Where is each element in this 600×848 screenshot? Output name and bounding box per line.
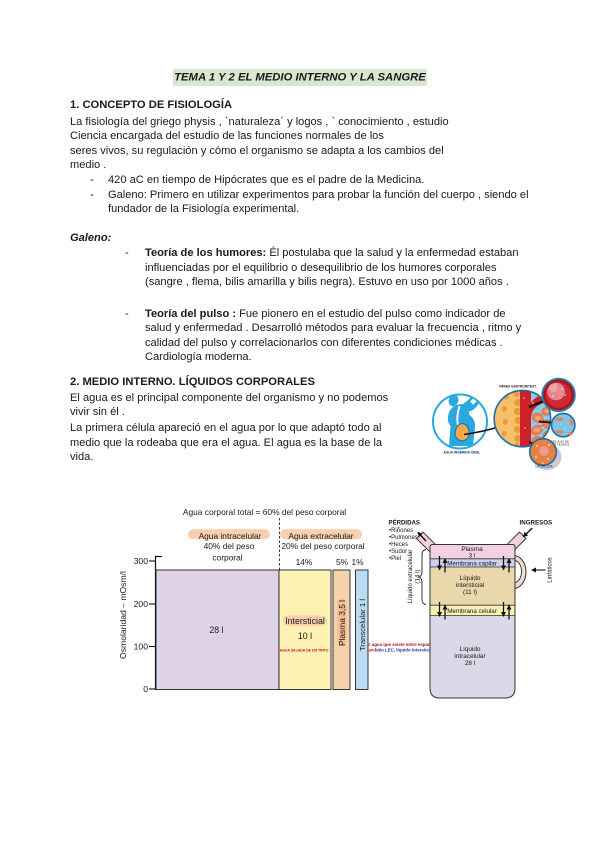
- svg-text:•Riñones: •Riñones: [389, 528, 413, 534]
- svg-text:1%: 1%: [351, 557, 364, 567]
- svg-text:20% del peso corporal: 20% del peso corporal: [281, 541, 364, 551]
- svg-text:3 l: 3 l: [469, 552, 476, 559]
- svg-text:28 l: 28 l: [465, 660, 475, 667]
- svg-text:0: 0: [143, 684, 148, 694]
- svg-text:Líquido extracelular: Líquido extracelular: [407, 549, 414, 603]
- svg-text:INGRESOS: INGRESOS: [520, 520, 553, 527]
- svg-text:Intersticial: Intersticial: [285, 616, 325, 626]
- svg-text:10 l: 10 l: [298, 631, 312, 641]
- svg-text:Líquido: Líquido: [460, 575, 481, 582]
- svg-text:•Pulmones: •Pulmones: [389, 535, 418, 541]
- svg-text:PÉRDIDAS: PÉRDIDAS: [389, 519, 421, 527]
- svg-text:28 l: 28 l: [209, 625, 223, 635]
- svg-text:•Heces: •Heces: [389, 542, 408, 548]
- svg-text:14%: 14%: [296, 557, 313, 567]
- svg-text:200: 200: [134, 599, 149, 609]
- svg-text:PARED GASTROINTEST.: PARED GASTROINTEST.: [499, 385, 536, 389]
- svg-text:100: 100: [134, 642, 149, 652]
- svg-text:300: 300: [134, 556, 149, 566]
- svg-text:LA CÉLULA: LA CÉLULA: [535, 464, 553, 469]
- svg-text:Plasma 3,5 l: Plasma 3,5 l: [337, 600, 347, 646]
- svg-text:Agua corporal total = 60% del: Agua corporal total = 60% del peso corpo…: [183, 507, 346, 517]
- svg-text:AGUA SALADA DE UN TINTO: AGUA SALADA DE UN TINTO: [280, 649, 329, 653]
- svg-text:•Sudor: •Sudor: [389, 549, 407, 555]
- svg-text:AGUA INGERIDA ORAL: AGUA INGERIDA ORAL: [443, 450, 480, 454]
- svg-text:Agua intracelular: Agua intracelular: [199, 531, 262, 541]
- svg-text:corporal: corporal: [212, 553, 242, 563]
- svg-text:Agua extracelular: Agua extracelular: [288, 531, 353, 541]
- svg-text:5%: 5%: [336, 557, 349, 567]
- svg-text:Membrana celular: Membrana celular: [447, 608, 497, 615]
- svg-text:Transcelular 1 l: Transcelular 1 l: [358, 599, 367, 652]
- svg-text:(14 l): (14 l): [415, 569, 422, 583]
- svg-text:≡ agua que existe entre espaci: ≡ agua que existe entre espacios,: [368, 642, 438, 647]
- svg-text:Membrana capilar: Membrana capilar: [447, 561, 497, 568]
- svg-text:Linfáticos: Linfáticos: [548, 557, 554, 582]
- svg-text:40% del peso: 40% del peso: [204, 541, 255, 551]
- svg-text:Líquido: Líquido: [460, 646, 481, 653]
- svg-text:Osmolaridad – mOsm/l: Osmolaridad – mOsm/l: [118, 571, 128, 659]
- svg-text:(11 l): (11 l): [463, 589, 477, 596]
- svg-text:•Piel: •Piel: [389, 556, 401, 562]
